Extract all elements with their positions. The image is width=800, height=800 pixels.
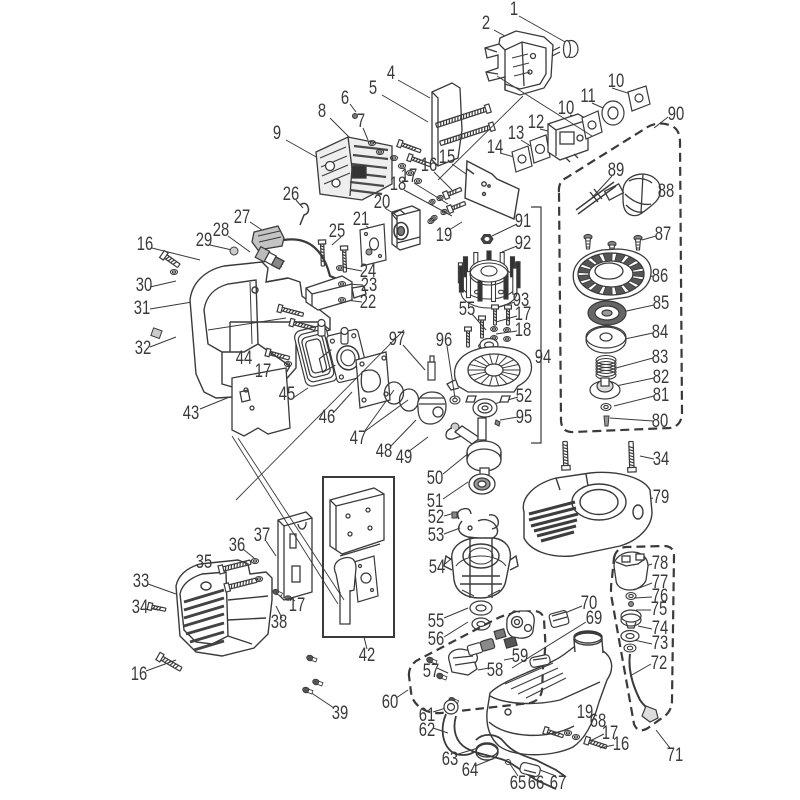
svg-text:94: 94 <box>535 346 551 367</box>
svg-text:32: 32 <box>135 337 151 358</box>
svg-text:35: 35 <box>196 551 212 572</box>
svg-text:18: 18 <box>390 173 406 194</box>
svg-text:16: 16 <box>131 663 147 684</box>
svg-text:56: 56 <box>428 628 444 649</box>
svg-text:63: 63 <box>442 748 458 769</box>
svg-text:80: 80 <box>652 410 668 431</box>
svg-text:16: 16 <box>613 733 629 754</box>
svg-text:81: 81 <box>653 384 669 405</box>
svg-text:73: 73 <box>652 632 668 653</box>
svg-text:16: 16 <box>421 154 437 175</box>
svg-text:78: 78 <box>652 552 668 573</box>
svg-text:25: 25 <box>329 220 345 241</box>
svg-text:37: 37 <box>254 524 270 545</box>
svg-text:17: 17 <box>255 360 271 381</box>
svg-text:58: 58 <box>487 659 503 680</box>
svg-text:15: 15 <box>439 146 455 167</box>
svg-text:83: 83 <box>652 346 668 367</box>
svg-text:57: 57 <box>423 660 439 681</box>
svg-text:75: 75 <box>651 598 667 619</box>
svg-text:20: 20 <box>374 191 390 212</box>
svg-text:64: 64 <box>462 759 478 780</box>
svg-text:31: 31 <box>134 297 150 318</box>
svg-text:9: 9 <box>273 122 281 143</box>
svg-text:67: 67 <box>550 772 566 793</box>
svg-text:65: 65 <box>510 772 526 793</box>
svg-text:16: 16 <box>137 233 153 254</box>
svg-text:48: 48 <box>376 440 392 461</box>
svg-text:86: 86 <box>652 265 668 286</box>
svg-text:91: 91 <box>515 210 531 231</box>
svg-text:22: 22 <box>360 291 376 312</box>
svg-text:2: 2 <box>482 12 490 33</box>
svg-text:19: 19 <box>436 224 452 245</box>
svg-text:33: 33 <box>133 570 149 591</box>
svg-text:18: 18 <box>515 319 531 340</box>
svg-text:96: 96 <box>436 329 452 350</box>
svg-text:92: 92 <box>515 232 531 253</box>
svg-text:85: 85 <box>653 292 669 313</box>
svg-text:45: 45 <box>279 383 295 404</box>
svg-text:54: 54 <box>429 556 445 577</box>
svg-text:69: 69 <box>586 607 602 628</box>
svg-text:79: 79 <box>653 486 669 507</box>
svg-text:42: 42 <box>359 644 375 665</box>
svg-text:21: 21 <box>353 208 369 229</box>
svg-text:52: 52 <box>516 385 532 406</box>
svg-text:26: 26 <box>283 183 299 204</box>
svg-text:7: 7 <box>357 110 365 131</box>
svg-text:11: 11 <box>580 85 595 106</box>
svg-text:12: 12 <box>528 111 544 132</box>
svg-text:28: 28 <box>213 219 229 240</box>
svg-text:38: 38 <box>271 611 287 632</box>
svg-text:29: 29 <box>196 229 212 250</box>
svg-text:27: 27 <box>234 206 250 227</box>
svg-text:8: 8 <box>318 100 326 121</box>
svg-text:43: 43 <box>183 402 199 423</box>
svg-text:46: 46 <box>319 406 335 427</box>
svg-text:39: 39 <box>332 702 348 723</box>
svg-text:88: 88 <box>658 180 674 201</box>
svg-text:95: 95 <box>516 406 532 427</box>
svg-text:13: 13 <box>508 122 524 143</box>
svg-text:36: 36 <box>229 534 245 555</box>
svg-text:49: 49 <box>396 446 412 467</box>
svg-text:89: 89 <box>608 159 624 180</box>
svg-text:53: 53 <box>428 524 444 545</box>
svg-text:6: 6 <box>341 87 349 108</box>
svg-text:34: 34 <box>653 448 669 469</box>
svg-text:30: 30 <box>136 274 152 295</box>
svg-text:72: 72 <box>651 652 667 673</box>
svg-text:1: 1 <box>510 0 518 20</box>
svg-text:62: 62 <box>419 719 435 740</box>
svg-text:47: 47 <box>350 427 366 448</box>
svg-text:55: 55 <box>459 298 475 319</box>
svg-text:10: 10 <box>558 97 574 118</box>
svg-text:66: 66 <box>528 772 544 793</box>
svg-text:44: 44 <box>236 347 252 368</box>
svg-text:5: 5 <box>369 77 377 98</box>
svg-text:97: 97 <box>389 328 405 349</box>
svg-text:34: 34 <box>132 596 148 617</box>
svg-text:17: 17 <box>289 594 305 615</box>
svg-text:10: 10 <box>608 70 624 91</box>
svg-text:14: 14 <box>487 136 503 157</box>
svg-text:4: 4 <box>387 62 395 83</box>
svg-text:87: 87 <box>655 223 671 244</box>
svg-text:90: 90 <box>668 103 684 124</box>
svg-text:50: 50 <box>427 467 443 488</box>
svg-text:71: 71 <box>667 744 683 765</box>
svg-text:60: 60 <box>382 691 398 712</box>
svg-text:59: 59 <box>512 645 528 666</box>
svg-text:84: 84 <box>652 321 668 342</box>
